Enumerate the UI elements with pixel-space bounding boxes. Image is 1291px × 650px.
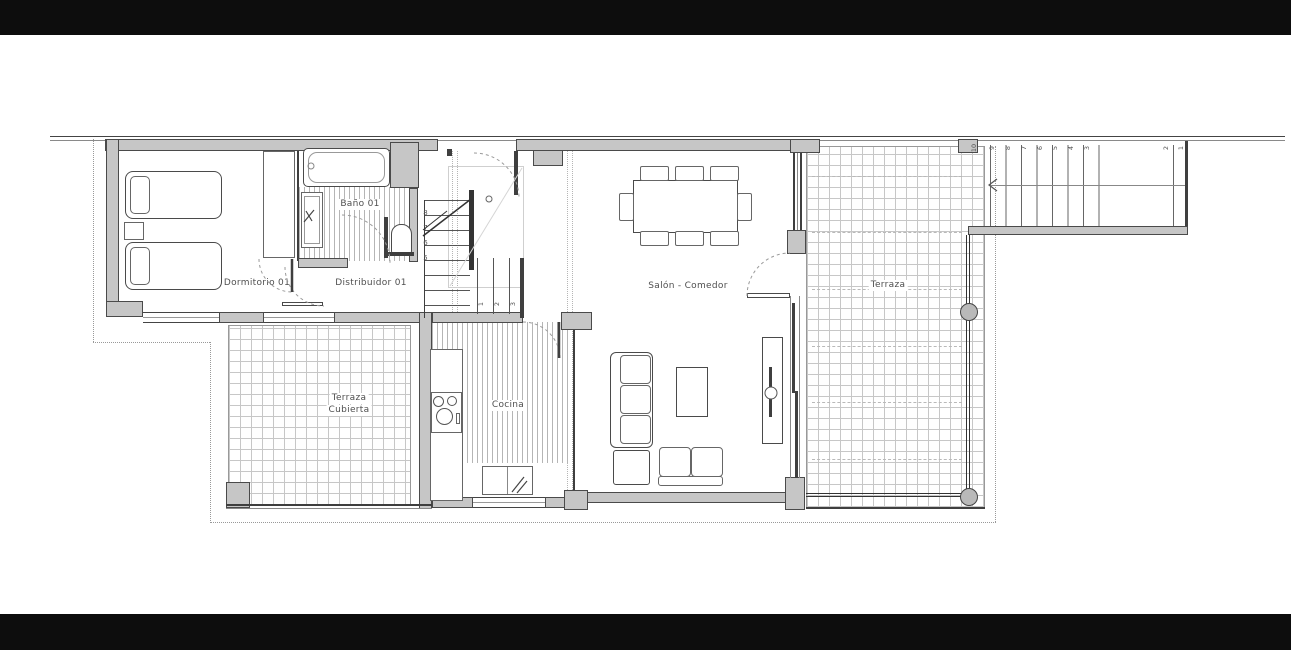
kitchen-south-window	[473, 497, 545, 508]
annotation-overlay	[0, 0, 1291, 650]
bathtub-inner	[308, 152, 385, 183]
ext-stair-number-2: 2	[1162, 142, 1170, 154]
salon-east-window-frame-1	[793, 153, 795, 231]
kitchen-sink-divider	[507, 467, 508, 494]
salon-east-window-mid	[797, 153, 798, 231]
wall-kitchen-hall-stub	[561, 312, 592, 330]
slider-frame-2	[799, 296, 800, 478]
ext-stair-number-8: 8	[1004, 142, 1012, 154]
terraza-slope-line-4	[812, 346, 962, 347]
int-stair-number-8: 8	[421, 209, 430, 217]
wall-salon-south-east-block	[785, 477, 805, 510]
floor-plan-canvas: Dormitorio 01 Baño 01 Distribuidor 01 Sa…	[0, 0, 1291, 650]
sofa-cushion-2	[620, 385, 651, 414]
terraza-cubierta-south-edge-2	[226, 508, 432, 509]
terraza-slope-line-5	[812, 402, 962, 403]
exterior-stair-centerline	[990, 185, 1186, 186]
wall-bath-south	[298, 258, 348, 268]
int-stair-number-5: 5	[421, 254, 430, 262]
wall-bath-west-line	[297, 151, 299, 261]
loveseat-cushion-1	[659, 447, 691, 477]
bedroom-south-window	[143, 312, 219, 323]
stove-burner-large	[436, 408, 453, 425]
interior-stair-lower-right-wall	[520, 258, 524, 318]
wall-south-1	[219, 312, 264, 323]
loveseat-cushion-2	[691, 447, 723, 477]
label-cocina: Cocina	[490, 400, 526, 411]
interior-stair-upper-run	[425, 200, 470, 319]
tv-cabinet	[762, 337, 783, 444]
bedroom-wardrobe	[263, 151, 295, 258]
distribuidor-door-arc	[285, 267, 324, 306]
toilet-bowl	[391, 224, 412, 254]
distribuidor-sliding-door-leaf	[282, 302, 323, 306]
boundary-dotted-step	[93, 342, 210, 343]
dining-chair-bottom-1	[640, 231, 669, 246]
label-terraza-cubierta-line2: Cubierta	[327, 405, 372, 416]
sofa-cushion-3	[620, 415, 651, 444]
entry-door-leaf	[514, 151, 518, 195]
stove-burner-small-1	[433, 396, 444, 407]
int-stair-number-1: 1	[477, 298, 485, 310]
wall-salon-east-pillar	[787, 230, 806, 254]
bottom-matte-bar	[0, 614, 1291, 650]
ext-stair-number-1: 1	[1177, 142, 1185, 154]
dining-chair-bottom-3	[710, 231, 739, 246]
label-terraza: Terraza	[869, 280, 908, 291]
exterior-stair-east-edge	[1185, 141, 1188, 235]
label-salon: Salón - Comedor	[648, 281, 727, 292]
stove-burner-small-2	[447, 396, 457, 406]
label-distribuidor: Distribuidor 01	[335, 278, 407, 289]
terraza-column-north	[960, 303, 978, 321]
boundary-dotted-left	[93, 139, 94, 342]
slider-frame-1	[790, 296, 791, 478]
wall-exterior-stair-south	[968, 226, 1188, 235]
terraza-south-edge	[806, 507, 985, 509]
ext-stair-number-7: 7	[1020, 142, 1028, 154]
wall-top-notch	[533, 150, 563, 166]
bed-2-pillow	[130, 247, 150, 285]
terraza-slope-line-6	[812, 459, 962, 460]
label-bano: Baño 01	[338, 199, 381, 210]
boundary-dotted-mid	[210, 342, 211, 523]
label-dormitorio: Dormitorio 01	[224, 278, 290, 289]
nightstand	[124, 222, 144, 240]
wall-kitchen-salon-partition	[573, 330, 575, 492]
loveseat-back	[658, 476, 723, 486]
int-stair-number-7: 7	[421, 224, 430, 232]
ext-stair-number-9: 9	[988, 142, 996, 154]
slider-panel-2	[795, 391, 798, 478]
wall-bath-northeast-block	[390, 142, 419, 188]
terrace-door-leaf	[747, 293, 790, 298]
stove-control	[456, 413, 460, 424]
distribuidor-south-window	[264, 312, 334, 323]
bath-sink-basin	[304, 196, 320, 244]
terraza-cubierta-south-edge	[226, 504, 432, 506]
terraza-railing-east	[966, 235, 970, 497]
dining-chair-bottom-2	[675, 231, 704, 246]
int-stair-number-6: 6	[421, 239, 430, 247]
ext-stair-number-5: 5	[1051, 142, 1059, 154]
terraza-railing-south	[806, 493, 969, 497]
dining-chair-right	[737, 193, 752, 221]
coffee-table	[676, 367, 708, 417]
salon-east-window-frame-2	[800, 153, 802, 231]
ext-stair-number-6: 6	[1036, 142, 1044, 154]
wall-salon-south-west-block	[564, 490, 588, 510]
tv-screen	[769, 367, 772, 417]
top-matte-bar	[0, 0, 1291, 35]
terraza-slope-line-2	[812, 232, 962, 233]
dining-chair-top-3	[710, 166, 739, 181]
label-terraza-cubierta-line1: Terraza	[330, 393, 369, 404]
terraza-cubierta-tile-floor	[228, 325, 411, 506]
terraza-column-south	[960, 488, 978, 506]
dining-table	[633, 180, 738, 233]
entry-door-frame-tick	[447, 149, 452, 156]
wall-west	[106, 139, 119, 317]
wall-west-corner-step	[106, 301, 143, 317]
wall-salon-south	[572, 492, 788, 503]
dining-chair-left	[619, 193, 634, 221]
terraza-slope-line-1	[812, 176, 962, 177]
ext-stair-number-3: 3	[1083, 142, 1091, 154]
boundary-dotted-bottom	[210, 522, 996, 523]
int-stair-number-3: 3	[509, 298, 517, 310]
sofa-cushion-1	[620, 355, 651, 384]
dining-chair-top-1	[640, 166, 669, 181]
ext-stair-number-4: 4	[1067, 142, 1075, 154]
wall-terraza-top-stub	[790, 139, 820, 153]
interior-stair-stringer	[469, 190, 474, 270]
int-stair-number-2: 2	[493, 298, 501, 310]
armchair	[613, 450, 650, 485]
terraza-tile-floor	[806, 146, 985, 508]
wall-south-2	[334, 312, 432, 323]
ext-stair-number-10: 10	[970, 142, 978, 154]
slider-panel-1	[792, 303, 795, 393]
terrace-door-arc	[747, 253, 790, 296]
dining-chair-top-2	[675, 166, 704, 181]
toilet-tank	[387, 252, 414, 256]
bed-1-pillow	[130, 176, 150, 214]
